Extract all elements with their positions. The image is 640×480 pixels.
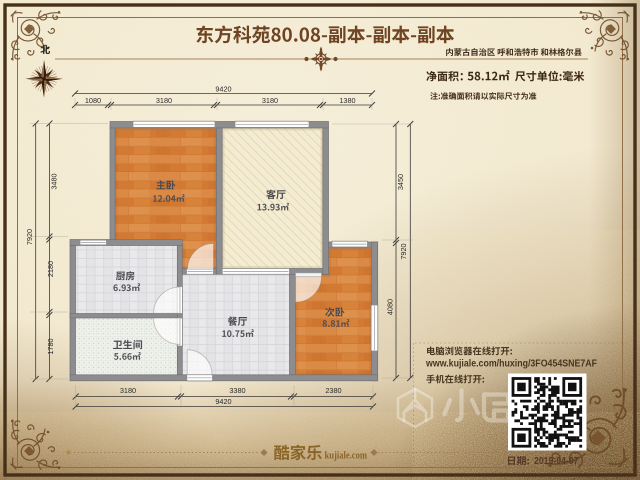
svg-text:3180: 3180: [262, 96, 278, 105]
svg-text:2380: 2380: [325, 386, 341, 395]
svg-text:1080: 1080: [85, 96, 101, 105]
svg-text:www.kujiale.com/huxing/3FO454S: www.kujiale.com/huxing/3FO454SNE7AF: [425, 358, 597, 370]
svg-text:9420: 9420: [215, 85, 231, 94]
svg-text:7920: 7920: [399, 243, 408, 259]
svg-text:2180: 2180: [46, 261, 55, 277]
svg-text:3480: 3480: [50, 173, 59, 189]
svg-text:3450: 3450: [396, 174, 405, 190]
svg-text:2019-04-07: 2019-04-07: [534, 455, 579, 467]
svg-text:3380: 3380: [229, 386, 245, 395]
svg-text:1380: 1380: [339, 96, 355, 105]
svg-text:kujiale.com: kujiale.com: [325, 450, 368, 461]
svg-text:3180: 3180: [156, 96, 172, 105]
svg-text:7920: 7920: [25, 229, 34, 245]
svg-text:1780: 1780: [46, 338, 55, 354]
svg-text:3180: 3180: [120, 386, 136, 395]
svg-text:4080: 4080: [386, 299, 395, 315]
svg-text:9420: 9420: [215, 397, 231, 406]
